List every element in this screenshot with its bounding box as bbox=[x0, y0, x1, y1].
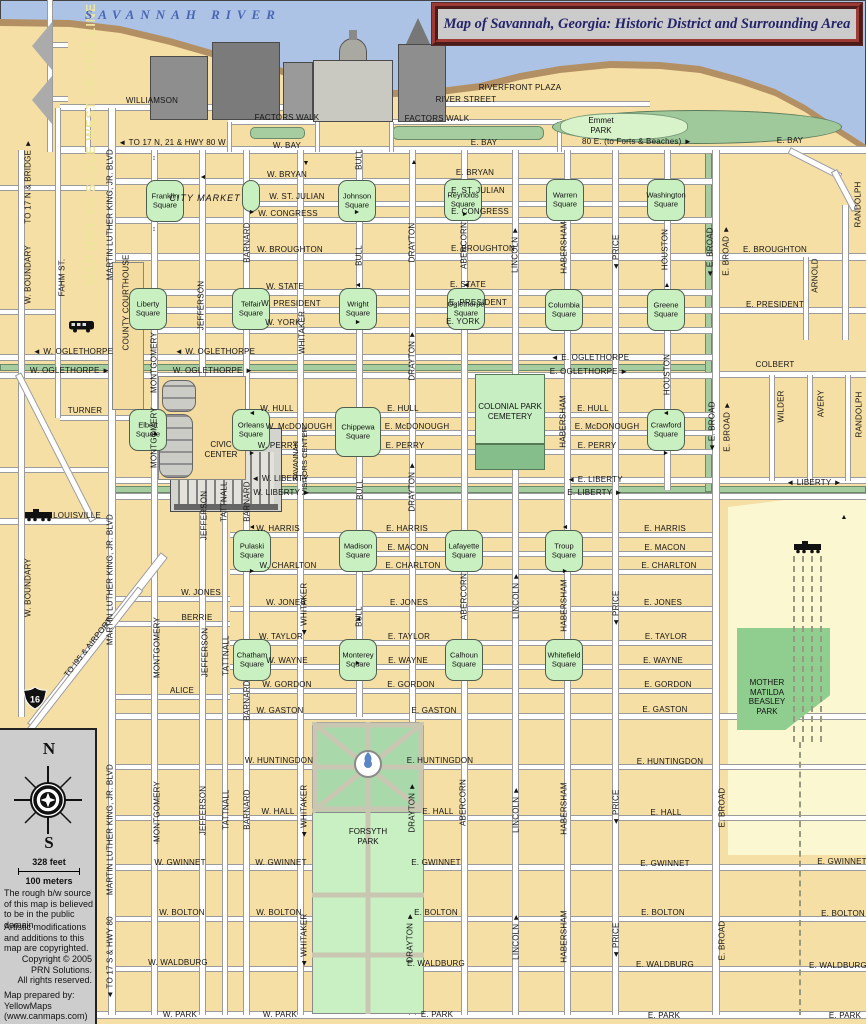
train-icon bbox=[793, 540, 823, 554]
bay-strip bbox=[250, 127, 305, 139]
street-label: E. McDONOUGH bbox=[532, 422, 682, 431]
street-label: E. PERRY bbox=[522, 441, 672, 450]
street-label: E. McDONOUGH bbox=[342, 422, 492, 431]
street-label-vertical: TATTNALL bbox=[222, 581, 231, 731]
scale-meters: 100 meters bbox=[4, 876, 94, 887]
street-label: E. CONGRESS bbox=[405, 207, 555, 216]
scale-feet: 328 feet bbox=[4, 857, 94, 868]
modifications-note: Artistic modifications and additions to … bbox=[4, 922, 94, 954]
legend-box: N S 328 feet 100 meters The rough b/w so… bbox=[0, 728, 97, 1024]
street-label-vertical: ◄ WHITAKER bbox=[300, 535, 309, 685]
compass-north-label: N bbox=[4, 744, 94, 755]
one-way-arrow: ► bbox=[348, 319, 368, 326]
street-label-vertical: MONTGOMERY bbox=[153, 737, 162, 887]
street-label-vertical: RANDOLPH bbox=[854, 130, 863, 280]
copyright-text: Copyright © 2005 PRN Solutions. All righ… bbox=[4, 954, 92, 986]
savannah-map: Emmet PARK COLONIAL PARK CEMETERY FORSYT… bbox=[0, 0, 866, 1024]
one-way-arrow: ► bbox=[555, 568, 575, 575]
street-segment bbox=[807, 375, 813, 481]
street-label: W. BAY bbox=[212, 141, 362, 150]
street-label-vertical: ◄ PRICE bbox=[612, 866, 621, 1016]
street-label-vertical: ABERCORN bbox=[460, 522, 469, 672]
one-way-arrow: ◄ bbox=[242, 524, 262, 531]
street-label: BERRIE bbox=[122, 613, 272, 622]
city-market-label: CITY MARKET bbox=[160, 194, 250, 204]
street-label-vertical: ◄ TO 17 S & HWY 80 bbox=[106, 883, 115, 1024]
street-label: W. YORK bbox=[208, 318, 358, 327]
forsyth-park-label: FORSYTH PARK bbox=[333, 827, 403, 846]
street-segment bbox=[842, 205, 849, 340]
street-label-vertical: E. BROAD ► bbox=[722, 176, 731, 326]
street-label-vertical: MONTGOMERY bbox=[150, 363, 159, 513]
street-label: E. BROUGHTON bbox=[408, 244, 558, 253]
city-hall-dome bbox=[339, 38, 367, 62]
street-label-vertical: DRAYTON ► bbox=[408, 733, 417, 883]
street-label: E. BAY bbox=[409, 138, 559, 147]
riverfront-building bbox=[150, 56, 208, 120]
street-label-vertical: LINCOLN ► bbox=[512, 862, 521, 1012]
street-label-vertical: HABERSHAM bbox=[560, 531, 569, 681]
street-label-vertical: MARTIN LUTHER KING, JR. BLVD bbox=[106, 140, 115, 290]
street-label: E. OGLETHORPE ► bbox=[514, 367, 664, 376]
street-label: E. BOLTON bbox=[361, 908, 511, 917]
street-label: E. GWINNET bbox=[767, 857, 866, 866]
map-scale-note: MAP NOT TO SCALE WEST OF THIS LINE bbox=[84, 66, 98, 324]
street-label-vertical: HABERSHAM bbox=[559, 347, 568, 497]
street-label: E. PARK bbox=[770, 1011, 866, 1020]
one-way-arrow: ◄ bbox=[348, 282, 368, 289]
one-way-arrow: ► bbox=[242, 568, 262, 575]
street-label-vertical: DRAYTON ► bbox=[408, 412, 417, 562]
one-way-arrow: ▲ bbox=[145, 430, 165, 437]
street-label: E. BAY bbox=[715, 136, 865, 145]
street-label-vertical: W. BOUNDARY bbox=[24, 200, 33, 350]
railroad-track bbox=[799, 742, 801, 1015]
compass-rose bbox=[13, 765, 83, 835]
city-hall-cupola bbox=[349, 30, 357, 40]
street-label-vertical: ABERCORN bbox=[459, 728, 468, 878]
street-label-vertical: RANDOLPH bbox=[855, 340, 864, 490]
street-label-vertical: ◄ E. BROAD bbox=[708, 352, 717, 502]
street-label: WILLIAMSON bbox=[77, 96, 227, 105]
one-way-arrow: ► bbox=[656, 450, 676, 457]
street-label-vertical: TATTNALL bbox=[222, 735, 231, 885]
street-label: ◄ LIBERTY ► bbox=[739, 478, 866, 487]
one-way-arrow: ► bbox=[455, 211, 475, 218]
one-way-arrow: ► bbox=[348, 660, 368, 667]
street-label: E. WAYNE bbox=[588, 656, 738, 665]
street-label-vertical: DRAYTON ► bbox=[406, 863, 415, 1013]
street-label: E. BOLTON bbox=[588, 908, 738, 917]
street-label: E. HULL bbox=[328, 404, 478, 413]
street-label-vertical: LINCOLN ► bbox=[512, 521, 521, 671]
street-label: E. PARK bbox=[362, 1010, 512, 1019]
street-label-vertical: HABERSHAM bbox=[560, 862, 569, 1012]
street-label: RIVERFRONT PLAZA bbox=[445, 83, 595, 92]
street-label-vertical: WILDER bbox=[777, 332, 786, 482]
railroad-track bbox=[811, 556, 813, 742]
street-label: E. HUNTINGDON bbox=[365, 756, 515, 765]
street-label: W. BRYAN bbox=[212, 170, 362, 179]
street-label-vertical: HABERSHAM bbox=[560, 173, 569, 323]
street-label: ◄ E. OGLETHORPE bbox=[515, 353, 665, 362]
street-segment bbox=[803, 257, 809, 340]
one-way-arrow: ↕ bbox=[144, 155, 164, 162]
street-label-vertical: FAHM ST. bbox=[58, 203, 67, 353]
one-way-arrow: ► bbox=[242, 209, 262, 216]
street-label: E. WALDBURG bbox=[361, 959, 511, 968]
street-label-vertical: BULL bbox=[355, 181, 364, 331]
map-title: Map of Savannah, Georgia: Historic Distr… bbox=[444, 16, 851, 33]
street-label: E. HULL bbox=[518, 404, 668, 413]
street-label: FACTORS WALK bbox=[362, 114, 512, 123]
scale-bar bbox=[18, 868, 80, 875]
street-label: W. WALDBURG bbox=[103, 958, 253, 967]
bridge-ramp bbox=[32, 76, 52, 124]
street-label-vertical: ◄ E. BROAD bbox=[706, 178, 715, 328]
street-label-vertical: ABERCORN bbox=[460, 171, 469, 321]
street-segment bbox=[845, 375, 851, 481]
street-label-vertical: BARNARD bbox=[243, 168, 252, 318]
street-label-vertical: JEFFERSON bbox=[199, 736, 208, 886]
street-label-vertical: MONTGOMERY bbox=[153, 573, 162, 723]
street-label: ALICE bbox=[107, 686, 257, 695]
one-way-arrow: ► bbox=[242, 450, 262, 457]
square: Liberty Square bbox=[129, 288, 167, 330]
street-label-vertical: BARNARD bbox=[243, 427, 252, 577]
street-label-vertical: ◄ WHITAKER bbox=[300, 737, 309, 887]
street-segment bbox=[389, 122, 394, 152]
railroad-track bbox=[802, 556, 804, 742]
street-label-vertical: MARTIN LUTHER KING, JR. BLVD bbox=[106, 505, 115, 655]
savannah-river-label: SAVANNAH RIVER bbox=[85, 7, 281, 23]
street-label-vertical: DRAYTON ► bbox=[408, 281, 417, 431]
visitors-center-label: SAVANNAH VISITORS CENTER bbox=[291, 406, 309, 516]
street-label: E. WALDBURG bbox=[763, 961, 866, 970]
one-way-arrow: ◄ bbox=[348, 616, 368, 623]
street-label-vertical: JEFFERSON bbox=[201, 578, 210, 728]
street-segment bbox=[769, 375, 775, 481]
street-label-vertical: AVERY bbox=[817, 329, 826, 479]
street-label-vertical: ◄ PRICE bbox=[612, 534, 621, 684]
street-label: W. BROUGHTON bbox=[215, 245, 365, 254]
street-label: E. JONES bbox=[588, 598, 738, 607]
street-label-vertical: COUNTY COURTHOUSE bbox=[122, 228, 131, 378]
street-label-vertical: WHITAKER bbox=[298, 258, 307, 408]
one-way-arrow: ◄ bbox=[242, 410, 262, 417]
railroad-track bbox=[793, 556, 795, 742]
street-label-vertical: LINCOLN ► bbox=[511, 175, 520, 325]
street-label: W. OGLETHORPE ► bbox=[138, 366, 288, 375]
street-label: E. BRYAN bbox=[400, 168, 550, 177]
one-way-arrow: ◄ bbox=[656, 410, 676, 417]
compass-south-label: S bbox=[4, 838, 94, 849]
street-label: W. BOLTON bbox=[204, 908, 354, 917]
street-label: E. GASTON bbox=[359, 706, 509, 715]
prepared-by-text: Map prepared by: YellowMaps (www.canmaps… bbox=[4, 990, 94, 1022]
one-way-arrow: ▲ bbox=[404, 159, 424, 166]
street-label: E. GWINNET bbox=[361, 858, 511, 867]
railroad-track bbox=[820, 556, 822, 742]
street-label: E. PRESIDENT bbox=[403, 298, 553, 307]
street-label: TURNER bbox=[10, 406, 160, 415]
street-label: E. LIBERTY ► bbox=[520, 488, 670, 497]
street-label-vertical: JEFFERSON bbox=[200, 441, 209, 591]
street-label-vertical: ◄ WHITAKER bbox=[300, 866, 309, 1016]
map-title-box: Map of Savannah, Georgia: Historic Distr… bbox=[432, 3, 862, 45]
street-label: E. PERRY bbox=[330, 441, 480, 450]
emmet-park-label: Emmet PARK bbox=[571, 116, 631, 135]
street-label-vertical: JEFFERSON bbox=[197, 231, 206, 381]
street-label: W. PRESIDENT bbox=[216, 299, 366, 308]
street-segment bbox=[115, 253, 866, 261]
one-way-arrow: ▲ bbox=[657, 282, 677, 289]
one-way-arrow: ◄ bbox=[456, 282, 476, 289]
street-label: W. LIBERTY ► bbox=[207, 488, 357, 497]
street-label: E. BOLTON bbox=[768, 909, 866, 918]
street-segment bbox=[0, 467, 112, 473]
street-label: W. PARK bbox=[205, 1010, 355, 1019]
street-label: 80 E. (to Forts & Beaches) ► bbox=[562, 137, 712, 146]
street-label: E. GASTON bbox=[590, 705, 740, 714]
one-way-arrow: ► bbox=[347, 209, 367, 216]
street-label: W. STATE bbox=[210, 282, 360, 291]
one-way-arrow: ▲ bbox=[834, 514, 854, 521]
church-spire bbox=[406, 18, 430, 44]
one-way-arrow: ◄ bbox=[193, 174, 213, 181]
riverfront-building bbox=[398, 44, 446, 122]
street-label: W. CONGRESS bbox=[213, 209, 363, 218]
street-label-vertical: ◄ PRICE bbox=[612, 178, 621, 328]
street-label-vertical: E. BROAD ► bbox=[723, 352, 732, 502]
street-label-vertical: E. BROAD bbox=[718, 733, 727, 883]
street-label: E. HALL bbox=[363, 807, 513, 816]
civic-center-hall bbox=[162, 380, 196, 412]
street-label: ◄ E. LIBERTY bbox=[520, 475, 670, 484]
street-label: E. HARRIS bbox=[590, 524, 740, 533]
riverfront-building bbox=[212, 42, 280, 120]
street-label-vertical: HOUSTON bbox=[663, 300, 672, 450]
street-label: ◄ W. OGLETHORPE bbox=[140, 347, 290, 356]
street-label-vertical: TATTNALL bbox=[220, 427, 229, 577]
street-label-vertical: BARNARD bbox=[243, 735, 252, 885]
riverfront-building bbox=[283, 62, 313, 120]
street-label-vertical: W. BOUNDARY bbox=[24, 513, 33, 663]
one-way-arrow: ▼ bbox=[296, 160, 316, 167]
street-segment bbox=[716, 371, 866, 378]
street-label: FACTORS WALK bbox=[212, 113, 362, 122]
one-way-arrow: ↕ bbox=[147, 839, 167, 846]
one-way-arrow: ◄ bbox=[555, 524, 575, 531]
street-label: E. ST. JULIAN bbox=[403, 186, 553, 195]
one-way-arrow: ↕ bbox=[144, 226, 164, 233]
street-label: RIVER STREET bbox=[391, 95, 541, 104]
street-label-vertical: ◄ PRICE bbox=[612, 733, 621, 883]
bridge-ramp bbox=[32, 22, 52, 70]
street-label-vertical: E. BROAD bbox=[718, 866, 727, 1016]
